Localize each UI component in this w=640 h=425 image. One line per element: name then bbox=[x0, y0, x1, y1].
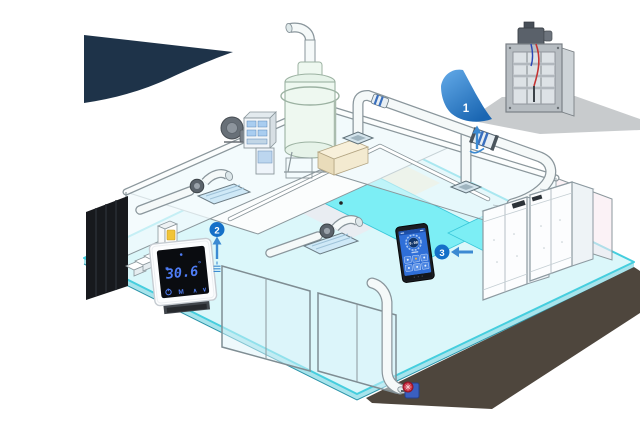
up-button-label: ∧ bbox=[193, 288, 198, 294]
damper-actuator bbox=[518, 28, 544, 46]
sensor-label bbox=[167, 230, 175, 240]
pool-ventilation-diagram: 30.6 ° M ∧ ∨ 0.00 bbox=[0, 0, 640, 425]
electrical-cabinet bbox=[256, 148, 274, 174]
dark-doorway bbox=[86, 196, 128, 300]
callout-1-label: 1 bbox=[463, 103, 470, 115]
floor-dot bbox=[339, 201, 343, 205]
damper-side-flange bbox=[562, 48, 574, 116]
tank-body bbox=[285, 82, 335, 150]
thermostat-panel: 30.6 ° M ∧ ∨ bbox=[149, 238, 218, 315]
down-button-label: ∨ bbox=[202, 287, 207, 293]
callout-2-label: 2 bbox=[214, 225, 219, 236]
callout-3-label: 3 bbox=[439, 248, 444, 259]
control-console bbox=[244, 112, 276, 148]
degree-symbol: ° bbox=[197, 260, 202, 268]
mode-button-label: M bbox=[178, 289, 184, 297]
illustration-canvas: 30.6 ° M ∧ ∨ 0.00 bbox=[0, 0, 640, 425]
